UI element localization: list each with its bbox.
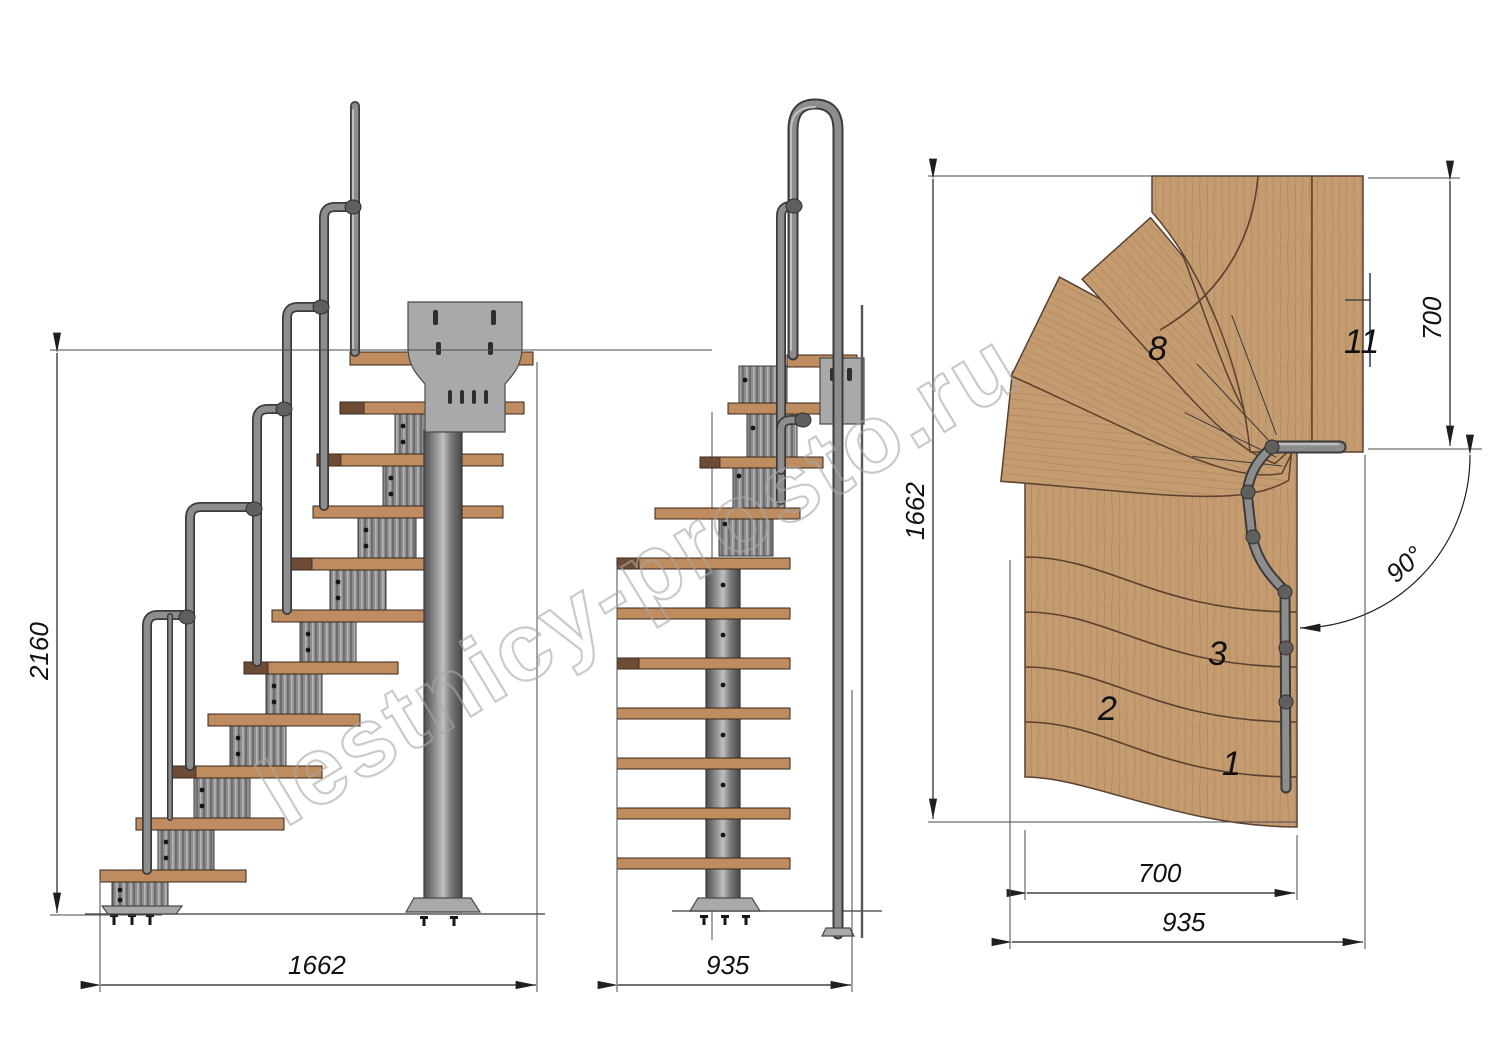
mounting-plate [408,302,522,432]
tread [100,870,246,882]
dim-plan-width: 935 [1162,907,1206,937]
tread [313,506,503,518]
rail-joint [1278,585,1292,599]
rail-clamp [246,502,262,516]
tread [617,758,790,769]
base-plate [102,906,182,914]
drawing-canvas: 2160 1662 [0,0,1500,1061]
rail-joint [1265,440,1279,454]
tread [617,808,790,819]
dim-side-length: 1662 [288,950,346,980]
module [266,674,322,714]
module [330,570,386,610]
staircase-drawing-page: 2160 1662 [0,0,1500,1061]
rail-clamp [179,610,195,624]
rail-clamp [786,199,802,213]
module [300,622,356,662]
rail-joint [1279,641,1293,655]
dim-plan-depth: 1662 [900,482,930,540]
module [158,830,214,870]
plan-landing-strip [1312,176,1363,452]
tread [136,818,284,830]
module [194,778,250,818]
module [112,882,168,908]
tread [272,610,428,622]
rail-clamp [276,402,292,416]
plan-view: 1 2 3 8 11 1662 700 90° 700 935 [900,176,1482,949]
rail-joint [1279,695,1293,709]
step-label-1: 1 [1222,745,1241,783]
rail-clamp [313,300,329,314]
column-base [406,898,480,912]
tread [317,454,503,466]
step-label-2: 2 [1097,690,1117,728]
post-base [822,928,854,936]
dim-plan-exit: 700 [1417,296,1447,340]
dim-plan-angle: 90° [1380,540,1429,589]
plan-straight-treads [1025,452,1297,827]
step-label-8: 8 [1148,330,1167,368]
step-label-3: 3 [1208,635,1227,673]
column-base [690,898,760,911]
dim-front-width: 935 [706,950,750,980]
tread [617,658,790,669]
rail-joint [1246,530,1260,544]
dim-plan-run: 700 [1138,858,1182,888]
tread [617,858,790,869]
rail-joint [1241,485,1255,499]
module [358,518,416,558]
angle-arc [1300,455,1470,628]
dim-side-height: 2160 [24,622,54,681]
rail-clamp [345,200,361,214]
step-label-11: 11 [1344,323,1379,361]
tread [617,708,790,719]
